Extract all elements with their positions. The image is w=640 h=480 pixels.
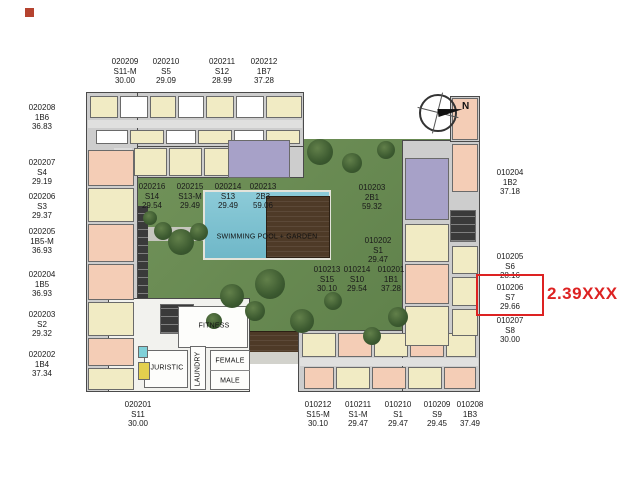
unit-area: 59.32 (359, 202, 386, 212)
tree-icon (388, 307, 408, 327)
room-block (88, 188, 134, 222)
tree-icon (290, 309, 314, 333)
unit-area: 37.49 (457, 419, 484, 429)
unit-code: 020208 (29, 103, 56, 113)
unit-label: 020201 S11 30.00 (125, 400, 152, 429)
unit-code: 010212 (305, 400, 332, 410)
room-block (90, 96, 118, 118)
unit-area: 29.47 (365, 255, 392, 265)
room-block (88, 338, 134, 366)
floor-plan-page: N SWIMMING POOL + GARDEN FITNESS JURISTI… (0, 0, 640, 480)
unit-code: 020203 (29, 310, 56, 320)
unit-area: 29.47 (385, 419, 412, 429)
unit-label: 020210 S5 29.09 (153, 57, 180, 86)
unit-label: 020211 S12 28.99 (209, 57, 235, 86)
compass-north-label: N (462, 101, 469, 112)
unit-type: 2B3 (250, 192, 277, 202)
unit-area: 30.10 (314, 284, 341, 294)
unit-code: 010207 (497, 316, 524, 326)
tree-icon (245, 301, 265, 321)
unit-label: 020216 S14 29.54 (139, 182, 166, 211)
unit-type: S1 (365, 246, 392, 256)
tree-icon (220, 284, 244, 308)
price-annotation: 2.39XXX (547, 284, 618, 304)
unit-label: 020204 1B5 36.93 (29, 270, 56, 299)
laundry-label: LAUNDRY (195, 352, 202, 387)
unit-code: 010205 (497, 252, 524, 262)
room-block (452, 144, 478, 192)
room-block (446, 333, 476, 357)
unit-code: 020211 (209, 57, 235, 67)
unit-label: 010210 S1 29.47 (385, 400, 412, 429)
unit-type: S11-M (112, 67, 139, 77)
unit-code: 020206 (29, 192, 56, 202)
unit-type: 1B4 (29, 360, 56, 370)
tree-icon (363, 327, 381, 345)
unit-area: 29.49 (177, 201, 204, 211)
unit-code: 010210 (385, 400, 412, 410)
room-block (134, 148, 167, 176)
unit-area: 29.54 (139, 201, 166, 211)
room-block (96, 130, 128, 144)
room-block (88, 368, 134, 390)
unit-type: S12 (209, 67, 235, 77)
unit-label: 020203 S2 29.32 (29, 310, 56, 339)
room-block (336, 367, 370, 389)
unit-area: 30.00 (497, 335, 524, 345)
unit-code: 010209 (424, 400, 451, 410)
room-block (444, 367, 476, 389)
unit-area: 29.32 (29, 329, 56, 339)
unit-area: 36.93 (29, 246, 56, 256)
room-block (138, 346, 148, 358)
corner-mark (25, 8, 34, 17)
unit-type: S1-M (345, 410, 371, 420)
tree-icon (255, 269, 285, 299)
room-block (166, 130, 196, 144)
unit-label: 020207 S4 29.19 (29, 158, 56, 187)
room-block (405, 264, 449, 304)
unit-label: 020205 1B5-M 36.93 (29, 227, 56, 256)
room-block (452, 277, 478, 306)
unit-area: 30.00 (125, 419, 152, 429)
plan-block (210, 370, 250, 371)
unit-area: 37.28 (251, 76, 278, 86)
room-block (206, 96, 234, 118)
unit-type: S14 (139, 192, 166, 202)
unit-label: 010203 2B1 59.32 (359, 183, 386, 212)
unit-area: 37.28 (378, 284, 405, 294)
unit-area: 37.34 (29, 369, 56, 379)
tree-icon (377, 141, 395, 159)
unit-code: 010204 (497, 168, 524, 178)
unit-type: S9 (424, 410, 451, 420)
pool-garden-label: SWIMMING POOL + GARDEN (217, 234, 318, 241)
unit-code: 020213 (250, 182, 277, 192)
unit-type: S6 (497, 262, 524, 272)
room-block (405, 224, 449, 262)
unit-code: 010214 (344, 265, 371, 275)
room-block (178, 96, 204, 118)
walkway (246, 352, 302, 364)
unit-label: 010212 S15-M 30.10 (305, 400, 332, 429)
unit-type: 1B5 (29, 280, 56, 290)
unit-code: 020205 (29, 227, 56, 237)
unit-code: 010213 (314, 265, 341, 275)
room-block (266, 96, 302, 118)
unit-type: 1B7 (251, 67, 278, 77)
unit-area: 29.19 (29, 177, 56, 187)
unit-label: 020215 S13-M 29.49 (177, 182, 204, 211)
unit-code: 020216 (139, 182, 166, 192)
corridor (300, 358, 478, 366)
male-label: MALE (220, 378, 240, 385)
room-block (130, 130, 164, 144)
unit-label: 010202 S1 29.47 (365, 236, 392, 265)
tree-icon (143, 211, 157, 225)
unit-area: 29.09 (153, 76, 180, 86)
unit-type: 1B1 (378, 275, 405, 285)
unit-code: 010202 (365, 236, 392, 246)
unit-area: 37.18 (497, 187, 524, 197)
room-block (405, 158, 449, 220)
juristic-label: JURISTIC (150, 365, 183, 372)
unit-type: S8 (497, 326, 524, 336)
unit-area: 28.99 (209, 76, 235, 86)
room-block (198, 130, 232, 144)
unit-type: 1B5-M (29, 237, 56, 247)
unit-code: 020202 (29, 350, 56, 360)
unit-area: 29.49 (215, 201, 242, 211)
unit-area: 36.83 (29, 122, 56, 132)
unit-label: 020214 S13 29.49 (215, 182, 242, 211)
room-block (452, 309, 478, 336)
unit-type: S11 (125, 410, 152, 420)
room-block (88, 150, 134, 186)
room-block (452, 246, 478, 274)
room-block (405, 306, 449, 346)
tree-icon (154, 222, 172, 240)
room-block (372, 367, 406, 389)
unit-code: 020210 (153, 57, 180, 67)
unit-code: 020207 (29, 158, 56, 168)
unit-type: S13 (215, 192, 242, 202)
room-block (236, 96, 264, 118)
unit-label: 020202 1B4 37.34 (29, 350, 56, 379)
unit-code: 020214 (215, 182, 242, 192)
unit-area: 30.00 (112, 76, 139, 86)
unit-label: 010209 S9 29.45 (424, 400, 451, 429)
unit-type: S13-M (177, 192, 204, 202)
unit-code: 020204 (29, 270, 56, 280)
unit-label: 010213 S15 30.10 (314, 265, 341, 294)
unit-area: 59.06 (250, 201, 277, 211)
unit-code: 010203 (359, 183, 386, 193)
female-label: FEMALE (215, 358, 244, 365)
unit-label: 010214 S10 29.54 (344, 265, 371, 294)
room-block (88, 264, 134, 300)
unit-label: 010207 S8 30.00 (497, 316, 524, 345)
unit-code: 020209 (112, 57, 139, 67)
unit-type: 1B2 (497, 178, 524, 188)
tree-icon (324, 292, 342, 310)
highlight-box (476, 274, 544, 316)
tree-icon (342, 153, 362, 173)
unit-code: 020212 (251, 57, 278, 67)
corridor (88, 120, 302, 128)
fitness-label: FITNESS (199, 323, 230, 330)
unit-label: 020209 S11-M 30.00 (112, 57, 139, 86)
room-block (88, 302, 134, 336)
unit-type: S15-M (305, 410, 332, 420)
tree-icon (190, 223, 208, 241)
unit-type: S10 (344, 275, 371, 285)
unit-area: 36.93 (29, 289, 56, 299)
unit-area: 29.45 (424, 419, 451, 429)
unit-area: 29.54 (344, 284, 371, 294)
stair-core (450, 210, 476, 242)
unit-label: 010211 S1-M 29.47 (345, 400, 371, 429)
room-block (150, 96, 176, 118)
unit-code: 020201 (125, 400, 152, 410)
unit-area: 29.47 (345, 419, 371, 429)
unit-label: 020212 1B7 37.28 (251, 57, 278, 86)
unit-label: 020208 1B6 36.83 (29, 103, 56, 132)
compass (419, 94, 457, 132)
unit-label: 010201 1B1 37.28 (378, 265, 405, 294)
unit-code: 010201 (378, 265, 405, 275)
unit-type: S2 (29, 320, 56, 330)
unit-code: 020215 (177, 182, 204, 192)
room-block (120, 96, 148, 118)
unit-label: 020206 S3 29.37 (29, 192, 56, 221)
unit-label: 020213 2B3 59.06 (250, 182, 277, 211)
unit-area: 30.10 (305, 419, 332, 429)
unit-area: 29.37 (29, 211, 56, 221)
unit-type: 1B6 (29, 113, 56, 123)
unit-type: S1 (385, 410, 412, 420)
room-block (138, 362, 150, 380)
unit-type: S3 (29, 202, 56, 212)
unit-type: S15 (314, 275, 341, 285)
unit-code: 010208 (457, 400, 484, 410)
room-block (304, 367, 334, 389)
unit-label: 010204 1B2 37.18 (497, 168, 524, 197)
room-block (228, 140, 290, 178)
unit-label: 010208 1B3 37.49 (457, 400, 484, 429)
unit-type: 2B1 (359, 193, 386, 203)
unit-type: S5 (153, 67, 180, 77)
room-block (88, 224, 134, 262)
tree-icon (307, 139, 333, 165)
room-block (169, 148, 202, 176)
unit-type: S4 (29, 168, 56, 178)
room-block (302, 333, 336, 357)
room-block (408, 367, 442, 389)
unit-type: 1B3 (457, 410, 484, 420)
unit-code: 010211 (345, 400, 371, 410)
